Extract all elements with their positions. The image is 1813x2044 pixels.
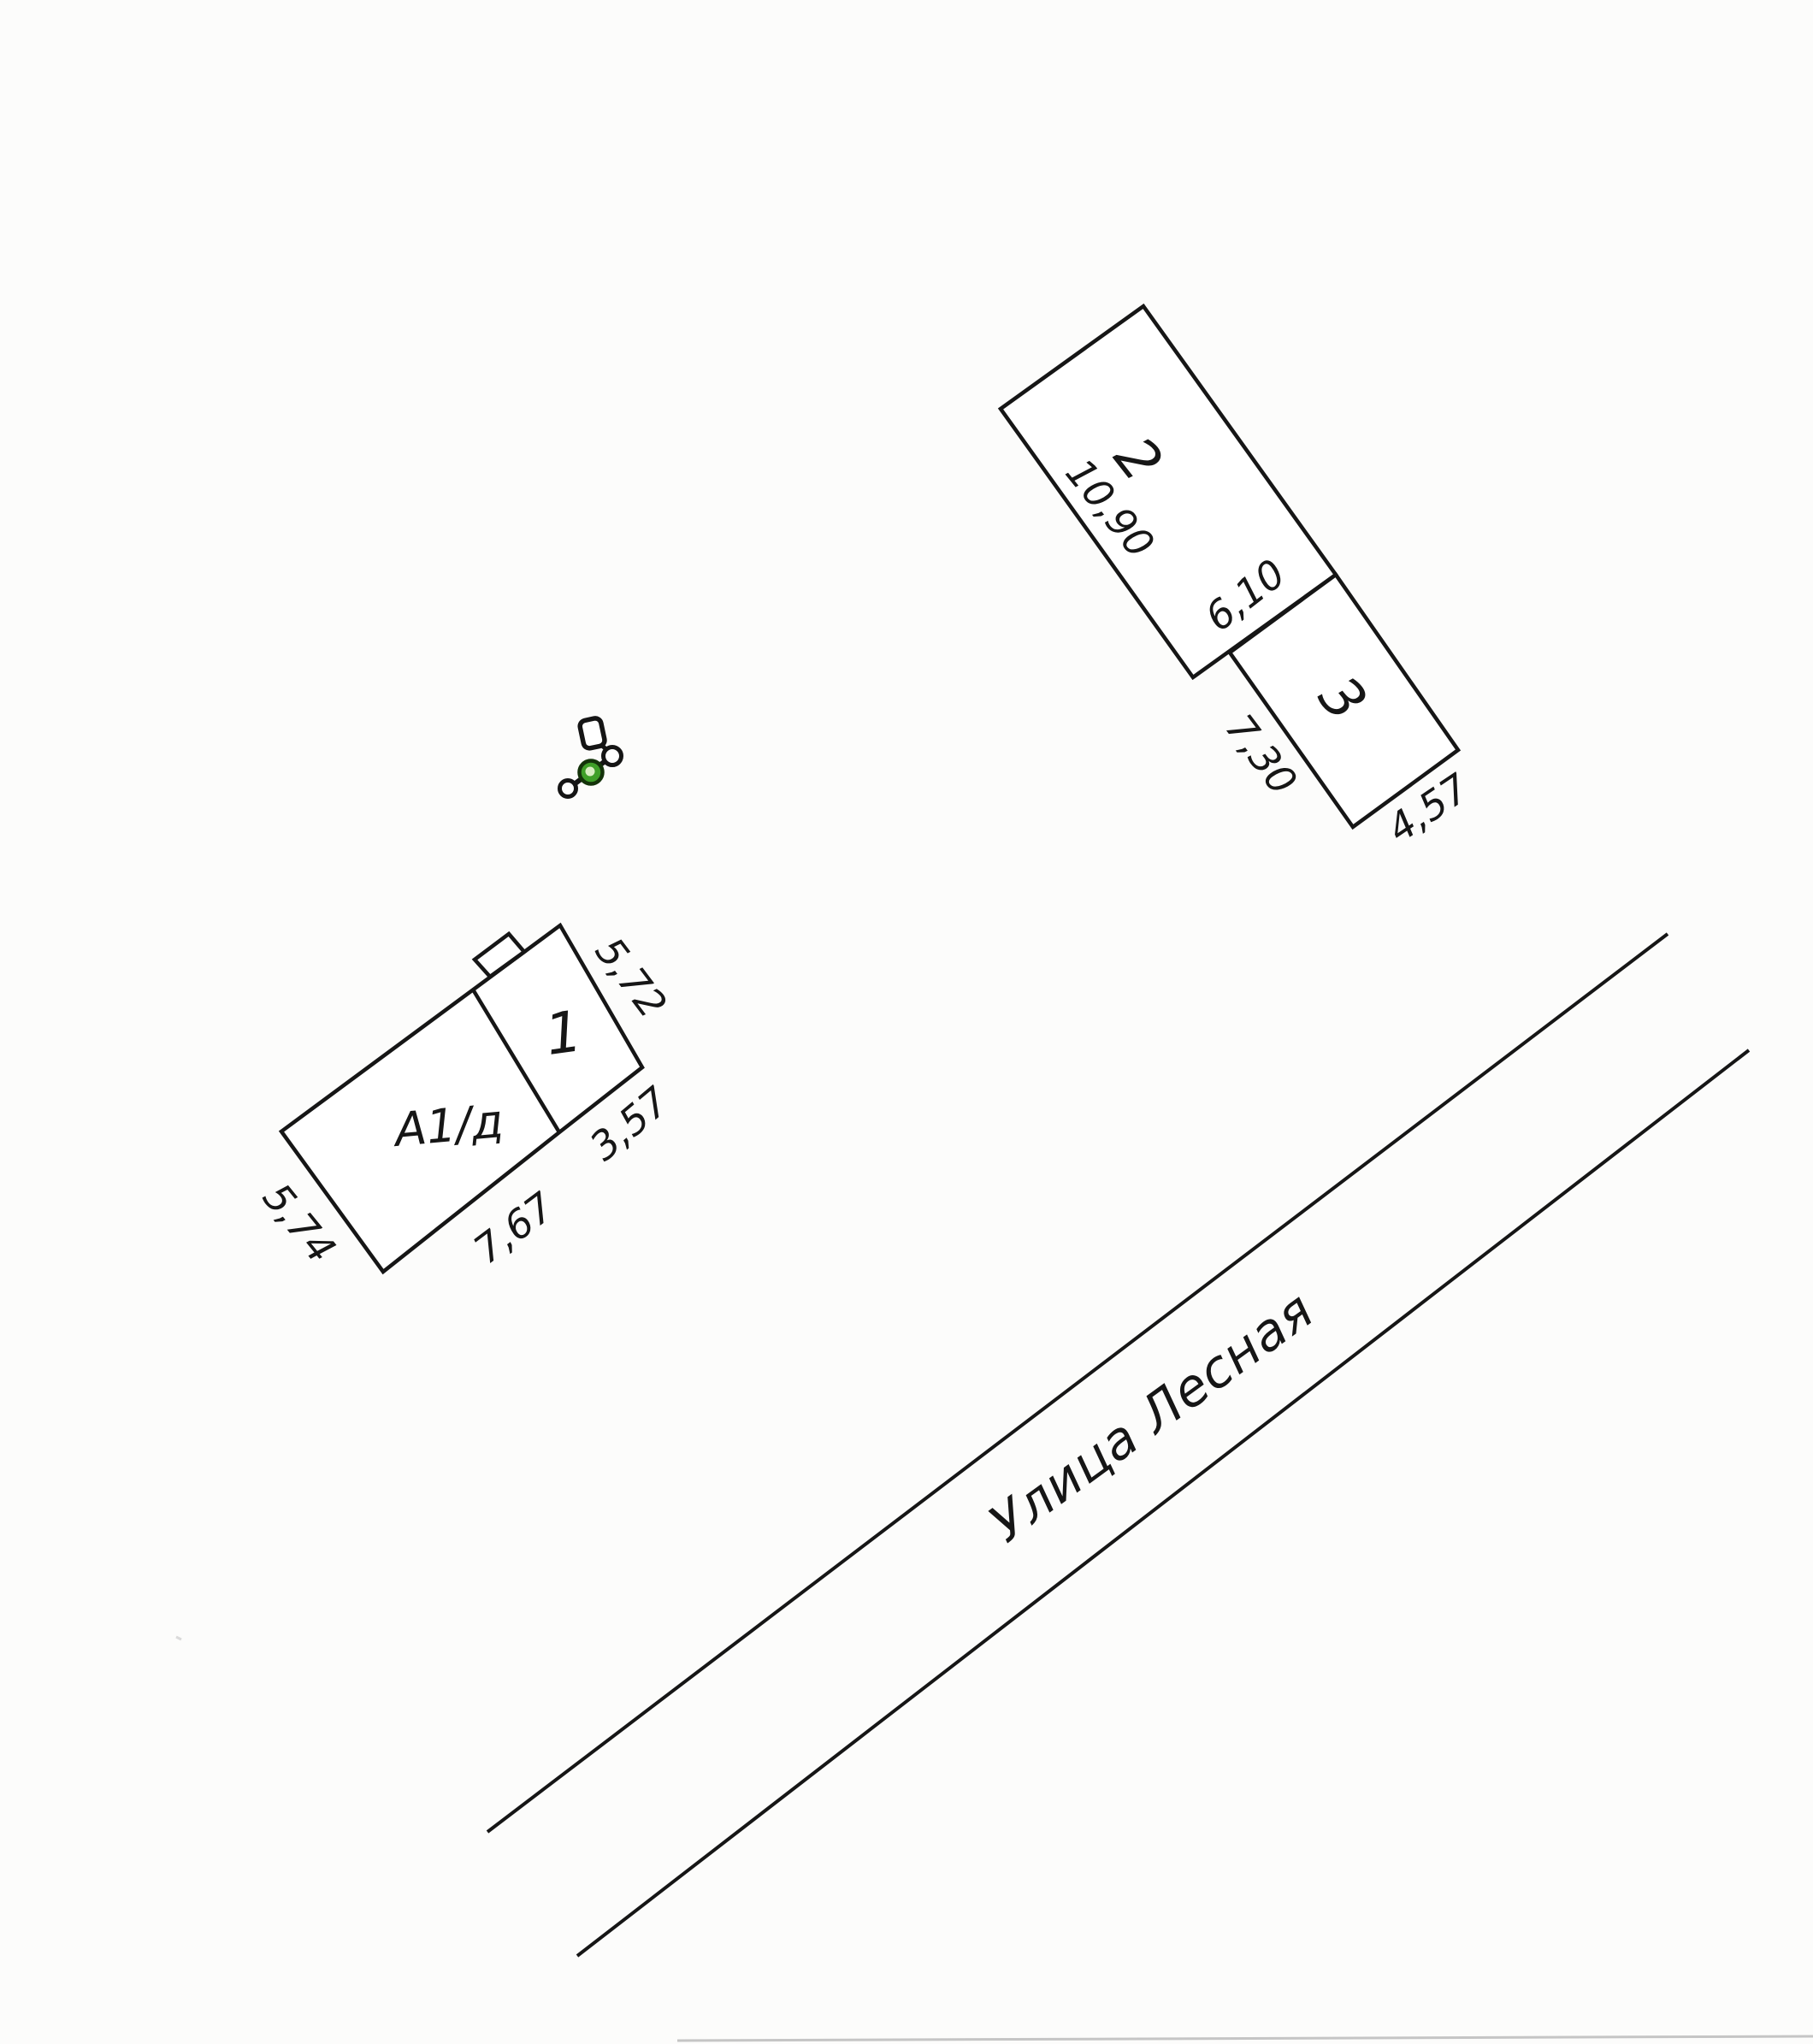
well-pole-marker-symbol [560,718,622,797]
building-1-label: А1/д [390,1094,505,1157]
building-1: А1/д 1 5,72 3,57 7,67 5,74 [254,925,678,1273]
street-edge-lower [577,1050,1749,1956]
street: Улица Лесная [487,934,1749,1956]
marker-rounded-rect [579,718,605,749]
marker-circle-left [560,781,576,797]
scan-speck-left [176,1637,181,1639]
site-plan-canvas: Улица Лесная 2 10,90 6,10 3 7,30 4,57 А1… [0,0,1813,2044]
scan-edge-bottom [677,2036,1813,2041]
street-edge-upper [487,934,1668,1832]
marker-green-circle-highlight [586,767,595,777]
marker-circle-right [604,747,622,765]
scan-artifacts [176,1637,1813,2041]
